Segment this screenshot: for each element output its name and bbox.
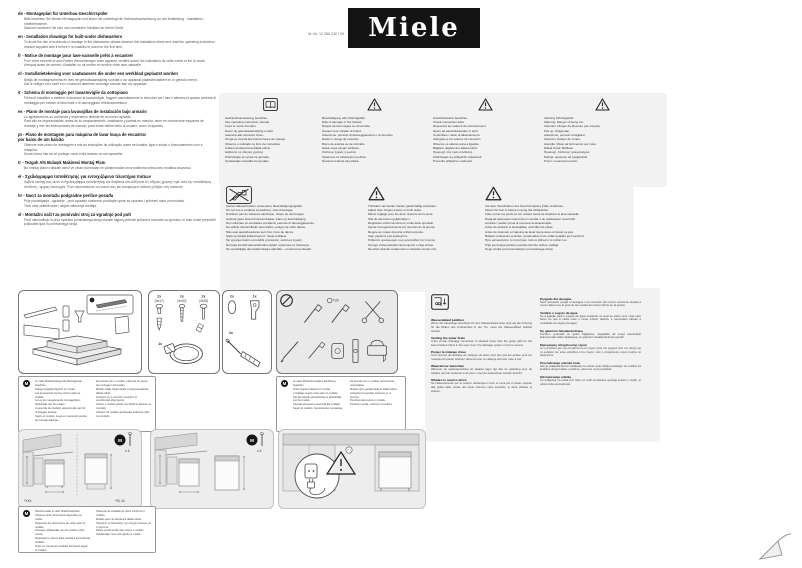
extra-parts-illustration: 2x 1x 2x (223, 291, 269, 371)
language-section-title: fr - Notice de montage pour lave-vaissel… (18, 53, 216, 58)
drain-section-body: Wenn der bauseitige Anschluss für den Wa… (431, 322, 532, 333)
drain-section-body: Se l'allacciamento per lo scarico dell'a… (431, 382, 532, 393)
miele-logo: Miele (348, 8, 480, 48)
warning-triangle-icon (485, 186, 628, 201)
extra-parts-box: 2x 1x 2x (222, 290, 272, 374)
open-book-icon (225, 98, 315, 113)
drain-section-body: If the on-site drainage connection is si… (431, 340, 532, 348)
drain-section-body: Kurulum yerindeki su gideri bağlantısı, … (540, 333, 641, 341)
language-section: fr - Notice de montage pour lave-vaissel… (18, 53, 216, 68)
drain-venting-block: Wasserablauf belüften Wenn der bauseitig… (425, 288, 660, 442)
language-section-title: tr - Tezgah Altı Bulaşık Makinesi Montaj… (18, 160, 216, 165)
language-section: de - Montageplan für Unterbau-Geschirrsp… (18, 11, 216, 31)
language-section-title: sl - Montažni načrt za pomivalni stroj z… (18, 212, 216, 217)
installation-drawing: M x 4 *XXL *SL XL (19, 430, 139, 506)
language-section: en - Installation drawings for built-und… (18, 34, 216, 49)
installation-drawing (279, 430, 423, 506)
warning-text: Gebrauchsanweisung beachten. See operati… (225, 116, 315, 164)
drain-section: Venting the water drain If the on-site d… (431, 336, 532, 348)
language-intro-list: de - Montageplan für Unterbau-Geschirrsp… (18, 11, 216, 230)
warning-box-connection-data: Anschlusswerte beachten. Check connectio… (427, 93, 543, 187)
model-variant-label: *XXL (24, 499, 32, 503)
model-note-text-left: Nischenmaße je nach Modell beachten. Obs… (35, 510, 90, 549)
screws-illustration: 2x (4x17) 1x (4x20) 2x (4x35) 1x (149, 291, 217, 371)
language-section: es - Plano de montaje para lavavajillas … (18, 109, 216, 129)
drain-column-left: Wasserablauf belüften Wenn der bauseitig… (431, 294, 532, 436)
warning-triangle-icon (544, 98, 661, 113)
language-section: el - Σχεδιάγραμμα τοποθέτησης για εντοιχ… (18, 174, 216, 189)
part-qty-label: 2x (230, 294, 234, 298)
drain-section: Purgado del desagüe Será necesario purga… (540, 297, 641, 309)
drain-section: Ventilar o esgoto da água Se a ligação p… (540, 311, 641, 326)
language-section-body: Bu montaj planını dikkate alınız ve ciha… (24, 166, 216, 170)
language-section: pt - Plano de montagem para máquina de l… (18, 132, 216, 157)
unpacking-diagram (18, 290, 142, 374)
diagram-badge: M (250, 438, 254, 443)
model-note-text-right: De acordo com o modelo, observar as peça… (96, 380, 151, 428)
torx-size-label: T20 (333, 299, 339, 303)
model-note-tools: M Je nach Modell benötigtes Werkzeug bea… (276, 376, 406, 432)
model-note-text-right: De acordo com o modelo, ferramentas nece… (350, 380, 401, 428)
language-section: nl - Installatietekening voor vaatwasser… (18, 71, 216, 86)
warning-triangle-icon (368, 186, 476, 201)
drain-section: Odzračevanje odtoka Če priključek za odt… (540, 375, 641, 387)
model-badge-icon: M (23, 510, 30, 517)
drain-section: Su giderinin havalandırılması Kurulum ye… (540, 329, 641, 341)
unpacking-illustration (19, 291, 139, 371)
language-section-body: Prije postavljanja - ugradnje - prve upo… (24, 199, 216, 208)
warning-triangle-icon (322, 98, 426, 113)
language-section: hr - Nacrt za montažu podgradne perilice… (18, 193, 216, 208)
model-note-text-left: Je nach Modell beiliegende Montageteile … (35, 380, 90, 428)
model-badge-icon: M (281, 380, 288, 387)
drain-section-body: Será necesario purgar el desagüe si la c… (540, 301, 641, 309)
warning-text: Beschädigung oder Brandgefahr. Risk of d… (322, 116, 426, 164)
model-note-columns: Nischenmaße je nach Modell beachten. Obs… (35, 510, 151, 549)
warning-text: Vor dem Verschieben des Geschirrspülers … (485, 204, 628, 252)
warning-box-door-springs: Türfedern auf beiden Seiten gleichmäßig … (362, 181, 482, 292)
language-section-title: nl - Installatietekening voor vaatwasser… (18, 71, 216, 76)
language-section-body: Pour votre sécurité et afin d'éviter d'e… (24, 59, 216, 68)
drain-section: Waterafvoer beluchten Wanneer de wateraa… (431, 364, 532, 376)
warning-box-no-cordless-screwdriver: Keinen Akkuschrauber verwenden, Beschädi… (220, 181, 366, 292)
language-section: sl - Montažni načrt za pomivalni stroj z… (18, 212, 216, 227)
language-section-body: Le agradecemos su confianza y esperamos … (24, 115, 216, 128)
screw-size-label: (4x17) (155, 299, 164, 303)
no-cordless-screwdriver-icon (226, 186, 360, 201)
drain-section-body: Αν η σύνδεση για την αποχέτευση του νερο… (540, 347, 641, 358)
model-note-columns: Je nach Modell benötigtes Werkzeug beach… (293, 380, 401, 428)
language-section-body: Pred namestitvijo in prvo uporabo pomiva… (24, 218, 216, 227)
drain-sections-left: Wasserablauf belüften Wenn der bauseitig… (431, 318, 532, 394)
language-section-body: Λάβετε υπόψη σας αυτό το σχεδιάγραμμα το… (24, 180, 216, 189)
tools-illustration: T20 (277, 291, 395, 371)
language-section: it - Schema di montaggio per lavastovigl… (18, 90, 216, 105)
language-section-body: Bekijk dit montageschema en lees de gebr… (24, 78, 216, 87)
drain-sections-right: Purgado del desagüe Será necesario purga… (540, 297, 641, 387)
model-badge-icon: M (23, 380, 30, 387)
warning-text: Anschlusswerte beachten. Check connectio… (433, 116, 537, 164)
drain-section-body: Wanneer de wateraansluiting ter plaatse … (431, 368, 532, 376)
model-variant-label: *SL XL (115, 499, 126, 503)
language-section-title: it - Schema di montaggio per lavastovigl… (18, 90, 216, 95)
niche-dimensions-diagram-1: M x 4 *XXL *SL XL (18, 429, 142, 509)
drain-section: Εξαερισμός αποχέτευσης νερού Αν η σύνδεσ… (540, 343, 641, 358)
screw-size-label: (4x35) (199, 299, 208, 303)
supplied-screws-box: 2x (4x17) 1x (4x20) 2x (4x35) 1x (148, 290, 220, 374)
language-section-title: de - Montageplan für Unterbau-Geschirrsp… (18, 11, 216, 16)
corner-mark-icon (758, 533, 792, 568)
model-note-text-right: Observar as medidas do nicho conforme o … (96, 510, 151, 549)
required-tools-box: T20 (276, 290, 398, 374)
language-section-title: en - Installation drawings for built-und… (18, 34, 216, 39)
drain-section: Prozračivanje odvoda vode Ako je priklju… (540, 361, 641, 373)
screw-count-label: x 4 (257, 449, 262, 453)
warning-text: Achtung Schnittgefahr. Warning: Danger o… (544, 116, 661, 164)
warning-box-screw-feet-in: Vor dem Verschieben des Geschirrspülers … (479, 181, 634, 292)
model-note-columns: Je nach Modell beiliegende Montageteile … (35, 380, 151, 428)
language-section-body: Bitte beachten Sie diesen Montageplan un… (24, 17, 216, 30)
installation-sheet-page: M.-Nr. 12 086 240 / 00 Miele de - Montag… (0, 0, 802, 568)
language-section-title: es - Plano de montaje para lavavajillas … (18, 109, 216, 114)
niche-dimensions-diagram-2: M x 4 (150, 429, 274, 509)
drain-column-right: Purgado del desagüe Será necesario purga… (540, 294, 641, 436)
model-note-parts: M Je nach Modell beiliegende Montageteil… (18, 376, 156, 432)
drain-section: Wasserablauf belüften Wenn der bauseitig… (431, 318, 532, 333)
model-note-text-left: Je nach Modell benötigtes Werkzeug beach… (293, 380, 344, 428)
language-section-body: To avoid the risk of accidents or damage… (24, 40, 216, 49)
language-section-title: hr - Nacrt za montažu podgradne perilice… (18, 193, 216, 198)
clamp-qty-label: 1x (158, 342, 162, 346)
language-section-title: pt - Plano de montagem para máquina de l… (18, 132, 216, 143)
screw-size-label: (4x20) (177, 299, 186, 303)
drain-section: Purger la vidange d'eau Si le raccord do… (431, 350, 532, 362)
warning-text: Keinen Akkuschrauber verwenden, Beschädi… (226, 204, 360, 252)
drain-section-body: Se a ligação para o esgoto da água exist… (540, 315, 641, 326)
language-section-body: Prima di installare e mettere in funzion… (24, 96, 216, 105)
model-note-dimensions: M Nischenmaße je nach Modell beachten. O… (18, 506, 156, 553)
warning-box-fire-damage: Beschädigung oder Brandgefahr. Risk of d… (316, 93, 432, 187)
material-number: M.-Nr. 12 086 240 / 00 (286, 32, 344, 36)
warning-text: Türfedern auf beiden Seiten gleichmäßig … (368, 204, 476, 252)
electrical-connection-diagram (278, 429, 426, 509)
warning-box-read-manual: Gebrauchsanweisung beachten. See operati… (219, 93, 321, 187)
drain-section-body: Če priključek za odtok leži nižje od vod… (540, 379, 641, 387)
installation-drawing: M x 4 (151, 430, 271, 506)
drain-section-body: Ako je priključak kućne instalacije za o… (540, 365, 641, 373)
language-section-title: el - Σχεδιάγραμμα τοποθέτησης για εντοιχ… (18, 174, 216, 179)
drain-section: Sfiatare lo scarico idrico Se l'allaccia… (431, 378, 532, 393)
drain-section-body: Si le raccord domestique de vidange est … (431, 354, 532, 362)
diagram-badge: M (118, 438, 122, 443)
dishwasher-drain-icon (431, 294, 532, 315)
screw-count-label: x 4 (125, 449, 130, 453)
part-qty-label: 2x (229, 331, 233, 335)
warning-box-cut-hazard: Achtung Schnittgefahr. Warning: Danger o… (538, 93, 667, 187)
warning-triangle-icon (433, 98, 537, 113)
language-section: tr - Tezgah Altı Bulaşık Makinesi Montaj… (18, 160, 216, 171)
language-section-body: Observe este plano de montagem e leia as… (24, 143, 216, 156)
part-qty-label: 1x (253, 294, 257, 298)
